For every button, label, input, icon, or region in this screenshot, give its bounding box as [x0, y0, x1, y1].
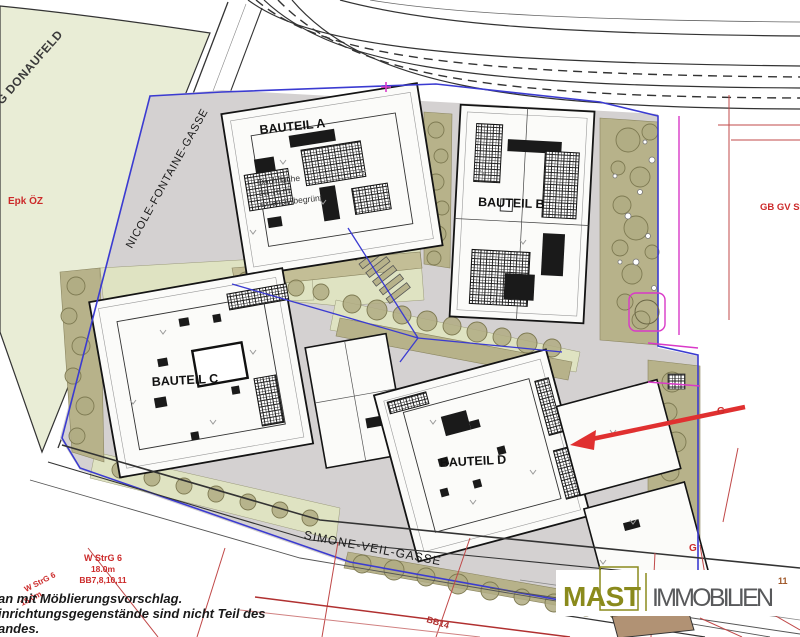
site-plan-svg: UG DONAUFELD Epk ÖZ NICOLE-FONTAINE-GASS…: [0, 0, 800, 637]
site-plan-page: UG DONAUFELD Epk ÖZ NICOLE-FONTAINE-GASS…: [0, 0, 800, 637]
logo-superscript: 11: [778, 576, 788, 586]
svg-text:BB7,8,10,11: BB7,8,10,11: [79, 575, 127, 585]
svg-text:andes.: andes.: [0, 621, 39, 636]
svg-text:W StrG 6: W StrG 6: [84, 553, 122, 563]
svg-text:inrichtungsgegenstände sind ni: inrichtungsgegenstände sind nicht Teil d…: [0, 606, 266, 621]
zoning-g-lower: G: [689, 543, 697, 554]
building-a: [221, 83, 442, 276]
zoning-g-upper: G: [717, 406, 725, 417]
zone-label-epk: Epk ÖZ: [8, 194, 43, 207]
svg-text:an mit Möblierungsvorschlag.: an mit Möblierungsvorschlag.: [0, 591, 182, 606]
svg-text:18.0m: 18.0m: [91, 564, 116, 574]
building-b-label: BAUTEIL B: [478, 195, 545, 211]
logo-immobilien-text: IMMOBILIEN: [652, 584, 774, 612]
logo-mast-immobilien: MAST IMMOBILIEN 11: [556, 567, 800, 616]
building-b: [450, 105, 595, 324]
zoning-right-label: GB GV StrG: [760, 202, 800, 213]
logo-mast-text: MAST: [563, 581, 641, 612]
